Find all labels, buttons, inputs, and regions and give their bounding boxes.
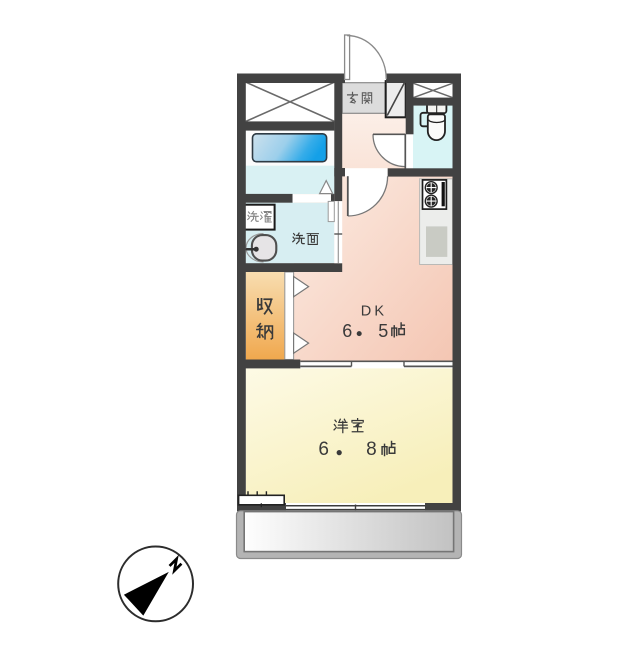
svg-text:6: 6 bbox=[342, 321, 352, 341]
svg-text:K: K bbox=[374, 303, 384, 319]
svg-text:6: 6 bbox=[318, 439, 329, 460]
svg-text:5: 5 bbox=[378, 321, 388, 341]
svg-text:D: D bbox=[361, 303, 371, 319]
svg-text:8: 8 bbox=[366, 439, 377, 460]
